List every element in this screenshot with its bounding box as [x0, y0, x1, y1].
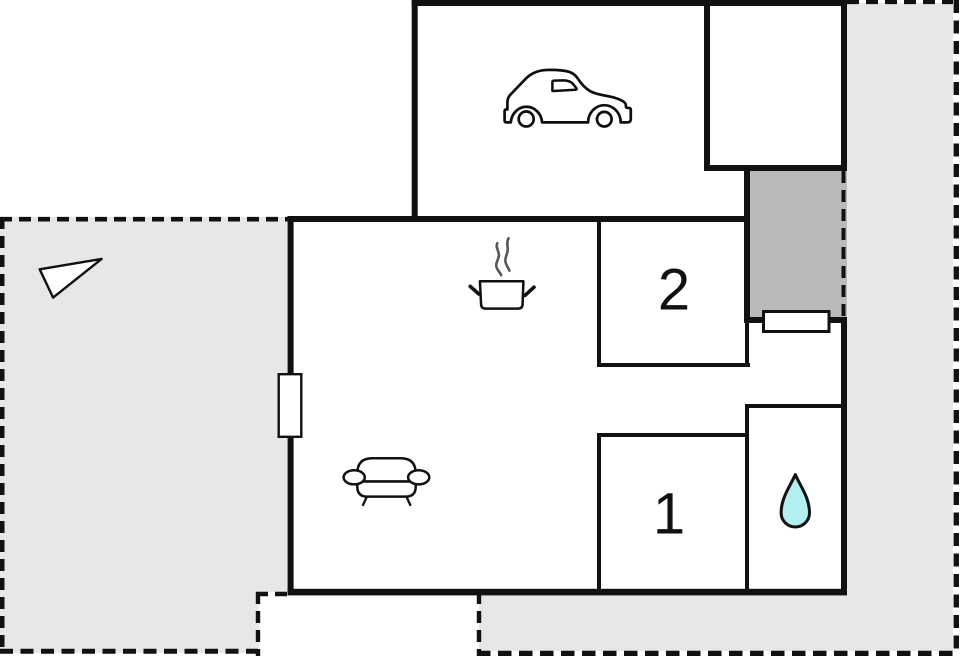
svg-text:2: 2 [658, 258, 690, 323]
svg-text:1: 1 [653, 482, 685, 547]
